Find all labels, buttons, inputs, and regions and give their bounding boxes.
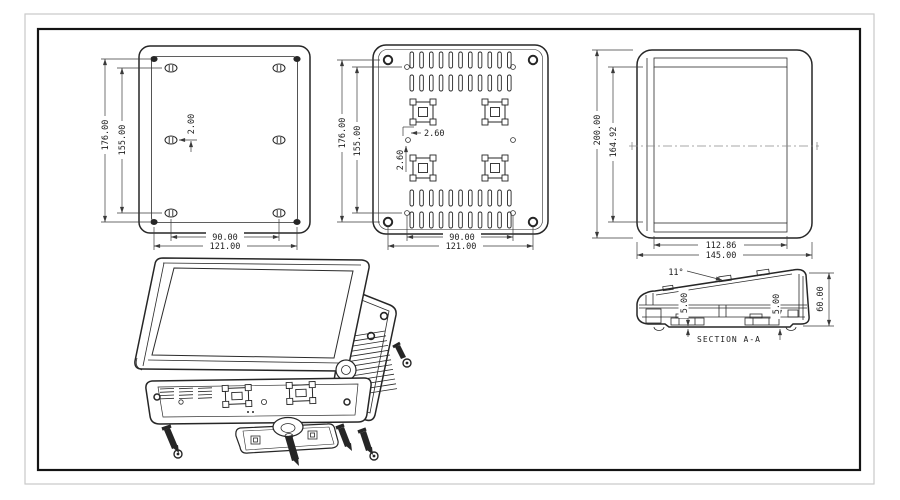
section-angle-label: 11°	[668, 268, 683, 278]
dim-section-front: 5.00	[679, 288, 691, 337]
section-label: SECTION A-A	[697, 335, 761, 344]
front-height-outer-label: 176.00	[101, 120, 111, 151]
back-width-outer-label: 121.00	[446, 242, 477, 252]
dim-section-angle: 11°	[668, 268, 722, 280]
front-view: 176.00 155.00 2.00 90.00	[99, 46, 310, 252]
back-view: 176.00 155.00 2.60 2.60 90.00	[336, 45, 548, 252]
back-height-inner-label: 155.00	[353, 126, 363, 157]
back-height-outer-label: 176.00	[338, 118, 348, 149]
drawing-sheet: 176.00 155.00 2.00 90.00	[0, 0, 900, 500]
section-view: 11° 5.00 5.00 60.00 SECTION A-A	[637, 268, 834, 344]
screw	[162, 426, 182, 458]
side-height-inner-label: 164.92	[609, 127, 619, 158]
side-view: 200.00 164.92 112.86 145.00	[591, 50, 819, 261]
front-width-outer-label: 121.00	[210, 242, 241, 252]
section-height-label: 60.00	[816, 286, 826, 312]
screw	[393, 343, 411, 367]
side-height-outer-label: 200.00	[593, 115, 603, 146]
exploded-bottom-tray	[146, 378, 371, 424]
front-offset-label: 2.00	[187, 114, 197, 134]
back-offset-h-label: 2.60	[424, 129, 444, 139]
screw	[336, 425, 352, 451]
back-offset-v-label: 2.60	[396, 150, 406, 170]
dim-section-back: 5.00	[771, 291, 783, 340]
dim-back-offset-v: 2.60	[396, 146, 406, 172]
screw	[358, 429, 378, 460]
exploded-view	[135, 258, 411, 466]
section-back-label: 5.00	[772, 294, 782, 314]
technical-drawing: 176.00 155.00 2.00 90.00	[0, 0, 900, 500]
front-height-inner-label: 155.00	[118, 125, 128, 156]
side-depth-outer-label: 145.00	[706, 251, 737, 261]
section-front-label: 5.00	[680, 293, 690, 313]
exploded-cover	[135, 258, 369, 380]
